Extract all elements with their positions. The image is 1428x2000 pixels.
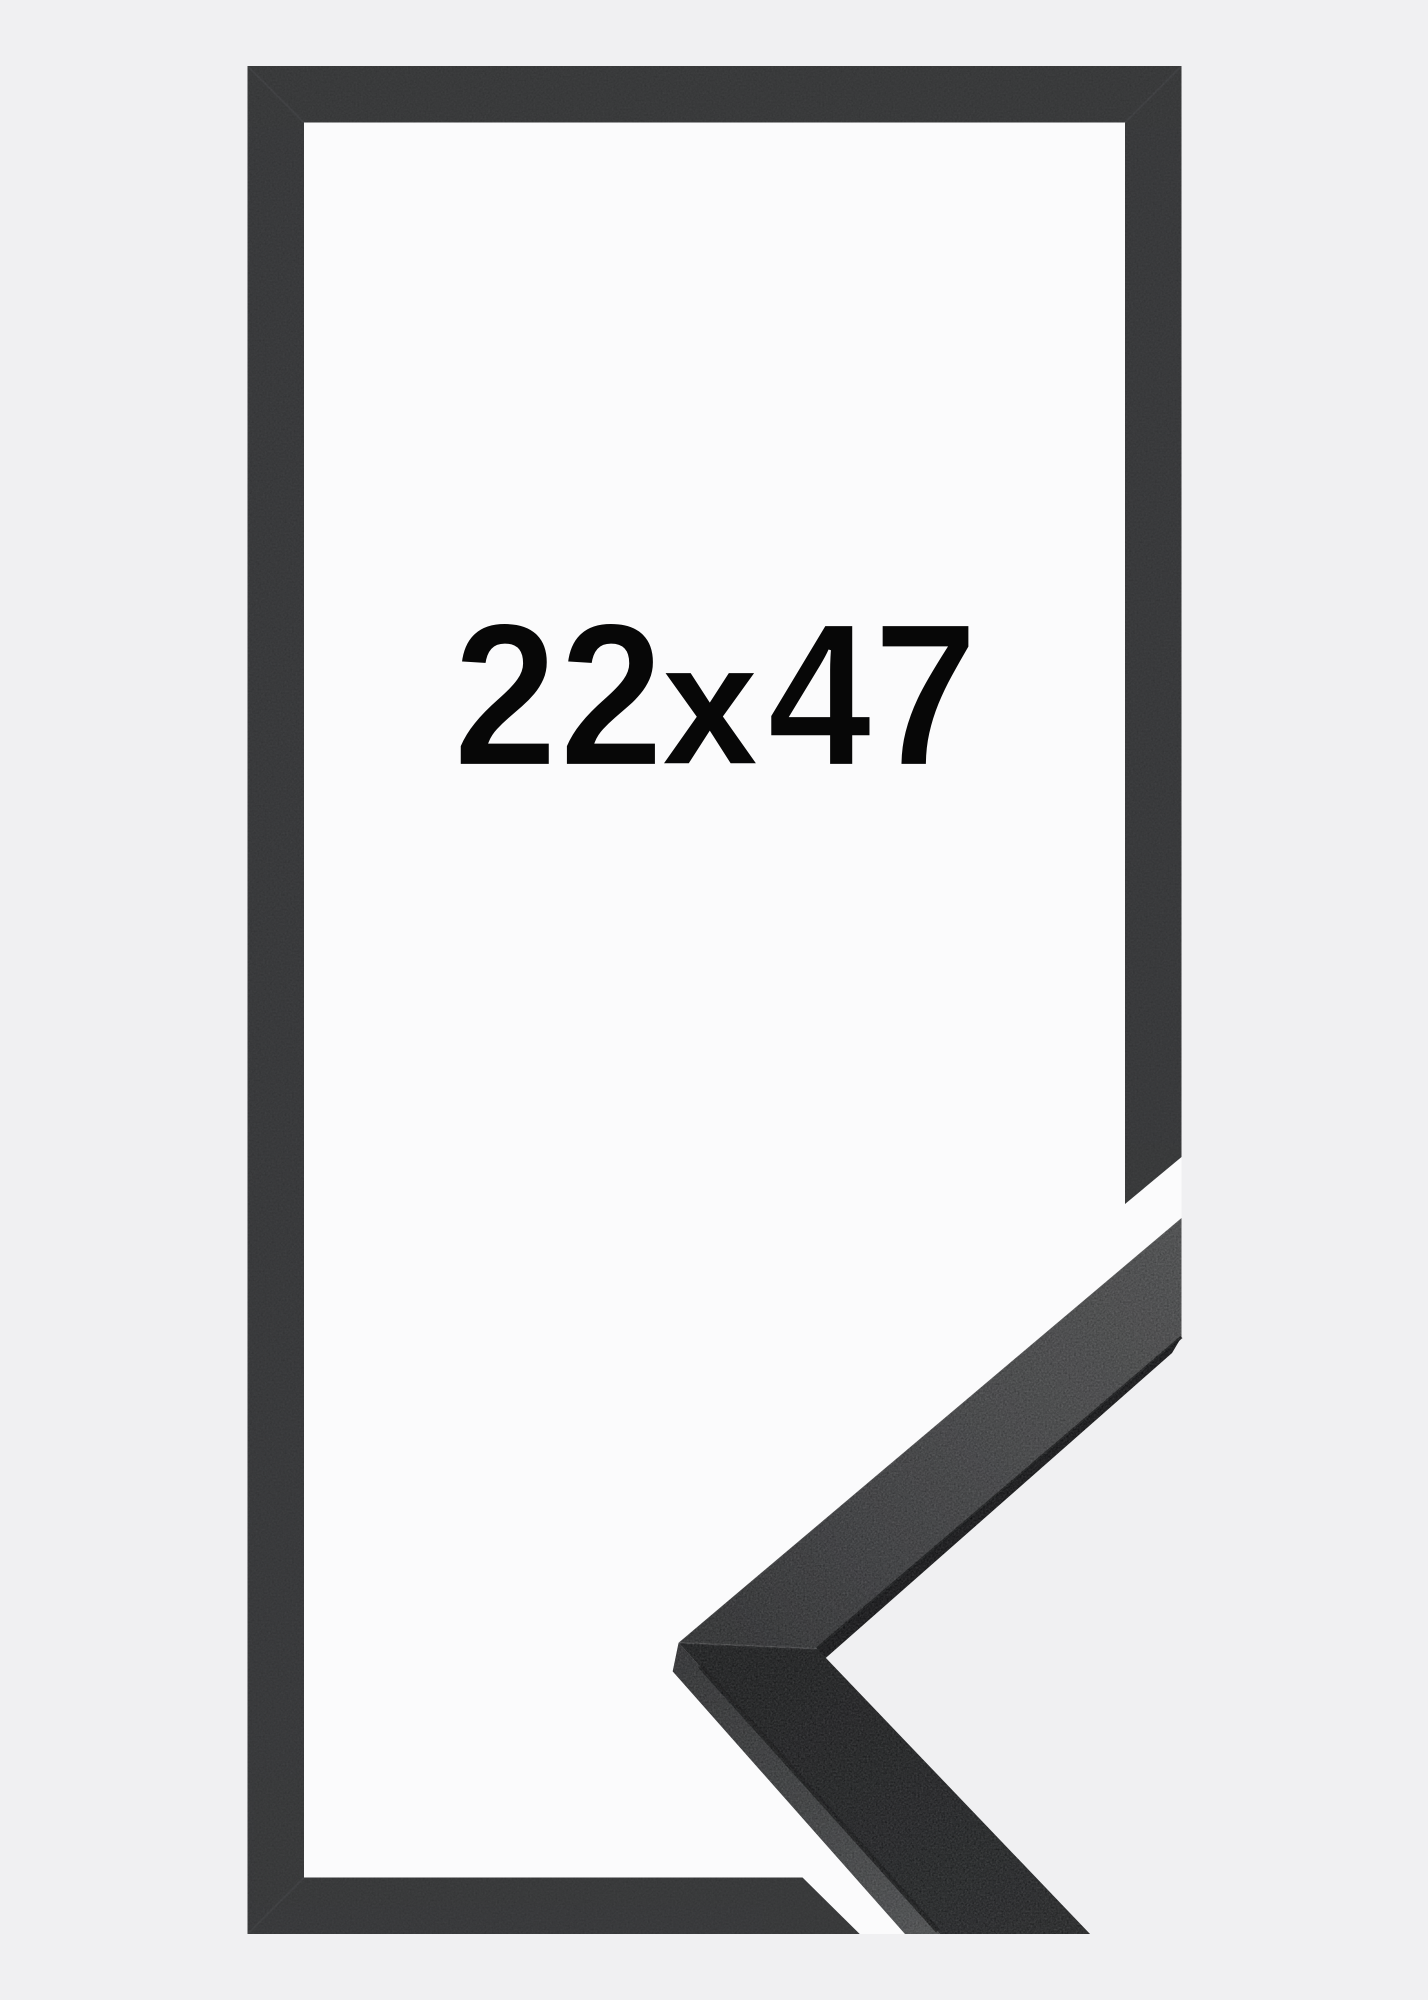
svg-text:x: x	[663, 610, 757, 801]
svg-text:47: 47	[767, 580, 979, 809]
svg-text:22: 22	[453, 580, 665, 809]
